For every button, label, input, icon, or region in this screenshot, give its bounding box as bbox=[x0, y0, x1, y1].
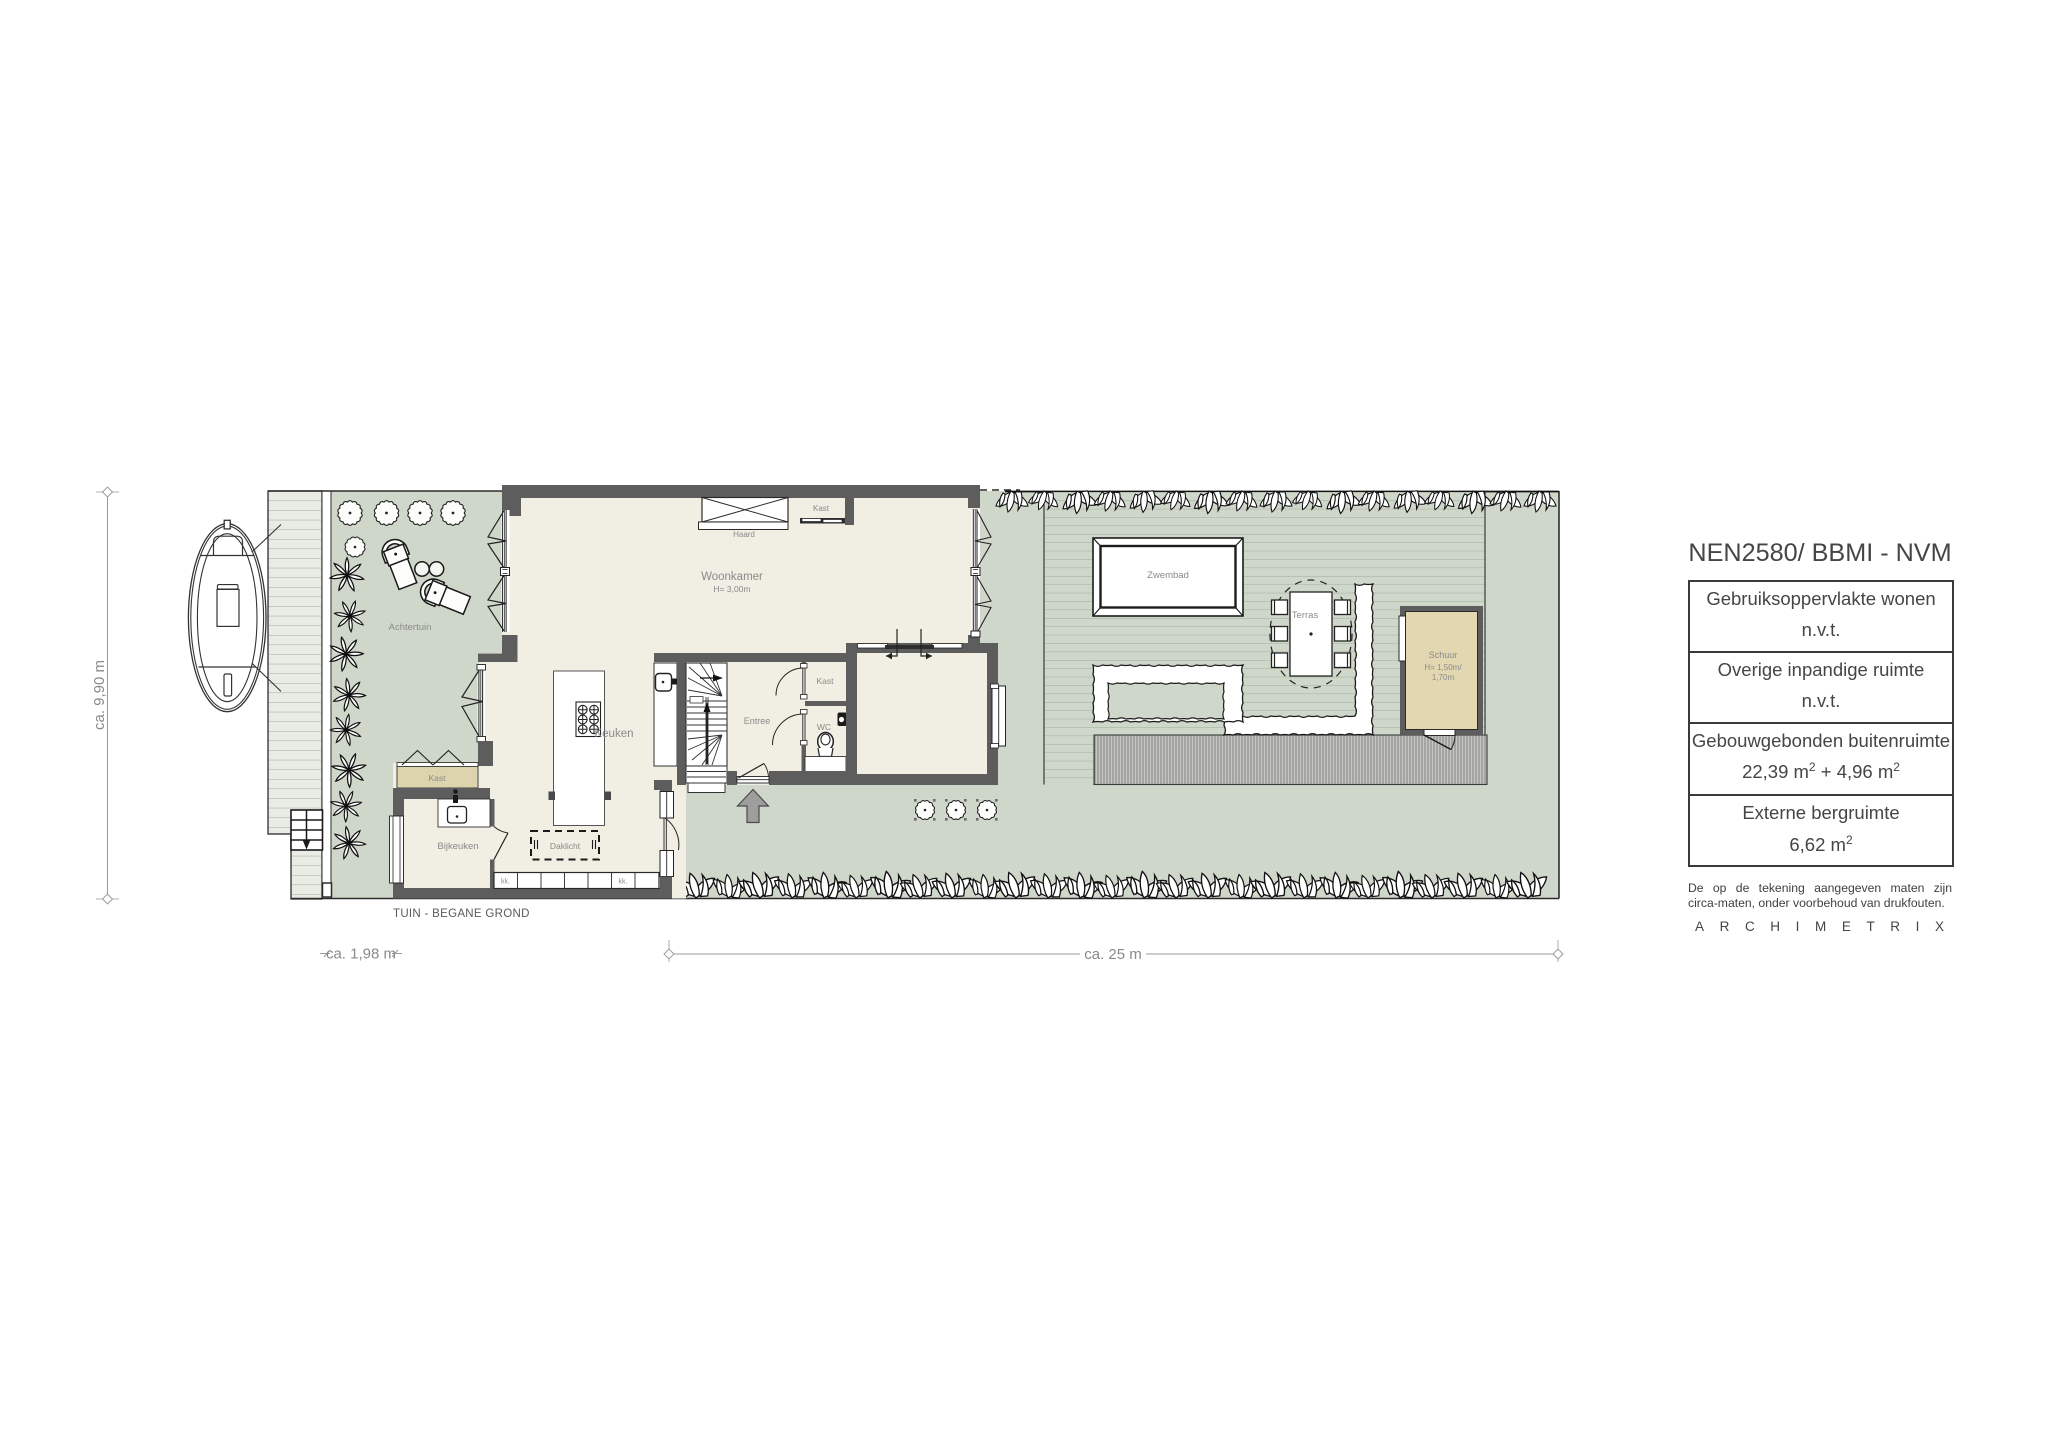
svg-text:Woonkamer: Woonkamer bbox=[701, 571, 763, 583]
svg-text:Bijkeuken: Bijkeuken bbox=[437, 841, 478, 852]
svg-text:Kast: Kast bbox=[813, 504, 830, 513]
svg-text:Entree: Entree bbox=[744, 716, 771, 726]
svg-text:H= 3,00m: H= 3,00m bbox=[713, 584, 750, 594]
svg-text:Kast: Kast bbox=[816, 676, 834, 686]
svg-text:H= 1,50m/: H= 1,50m/ bbox=[1424, 663, 1462, 672]
svg-text:1,70m: 1,70m bbox=[1432, 673, 1455, 682]
svg-text:WC: WC bbox=[817, 722, 831, 732]
svg-text:ca. 25 m: ca. 25 m bbox=[1084, 946, 1142, 963]
svg-text:Achtertuin: Achtertuin bbox=[389, 622, 432, 633]
svg-text:ca. 9,90 m: ca. 9,90 m bbox=[91, 660, 108, 730]
svg-text:kk.: kk. bbox=[501, 879, 510, 886]
svg-text:Haard: Haard bbox=[733, 530, 755, 539]
svg-text:Keuken: Keuken bbox=[594, 728, 633, 740]
svg-text:Schuur: Schuur bbox=[1429, 650, 1458, 660]
svg-text:Kast: Kast bbox=[428, 773, 446, 783]
svg-text:TUIN - BEGANE GROND: TUIN - BEGANE GROND bbox=[393, 908, 530, 920]
svg-text:ca. 1,98 m: ca. 1,98 m bbox=[326, 946, 396, 963]
svg-text:Zwembad: Zwembad bbox=[1147, 570, 1189, 581]
svg-text:kk.: kk. bbox=[619, 879, 628, 886]
svg-text:Terras: Terras bbox=[1292, 610, 1319, 621]
svg-text:Daklicht: Daklicht bbox=[550, 841, 581, 851]
